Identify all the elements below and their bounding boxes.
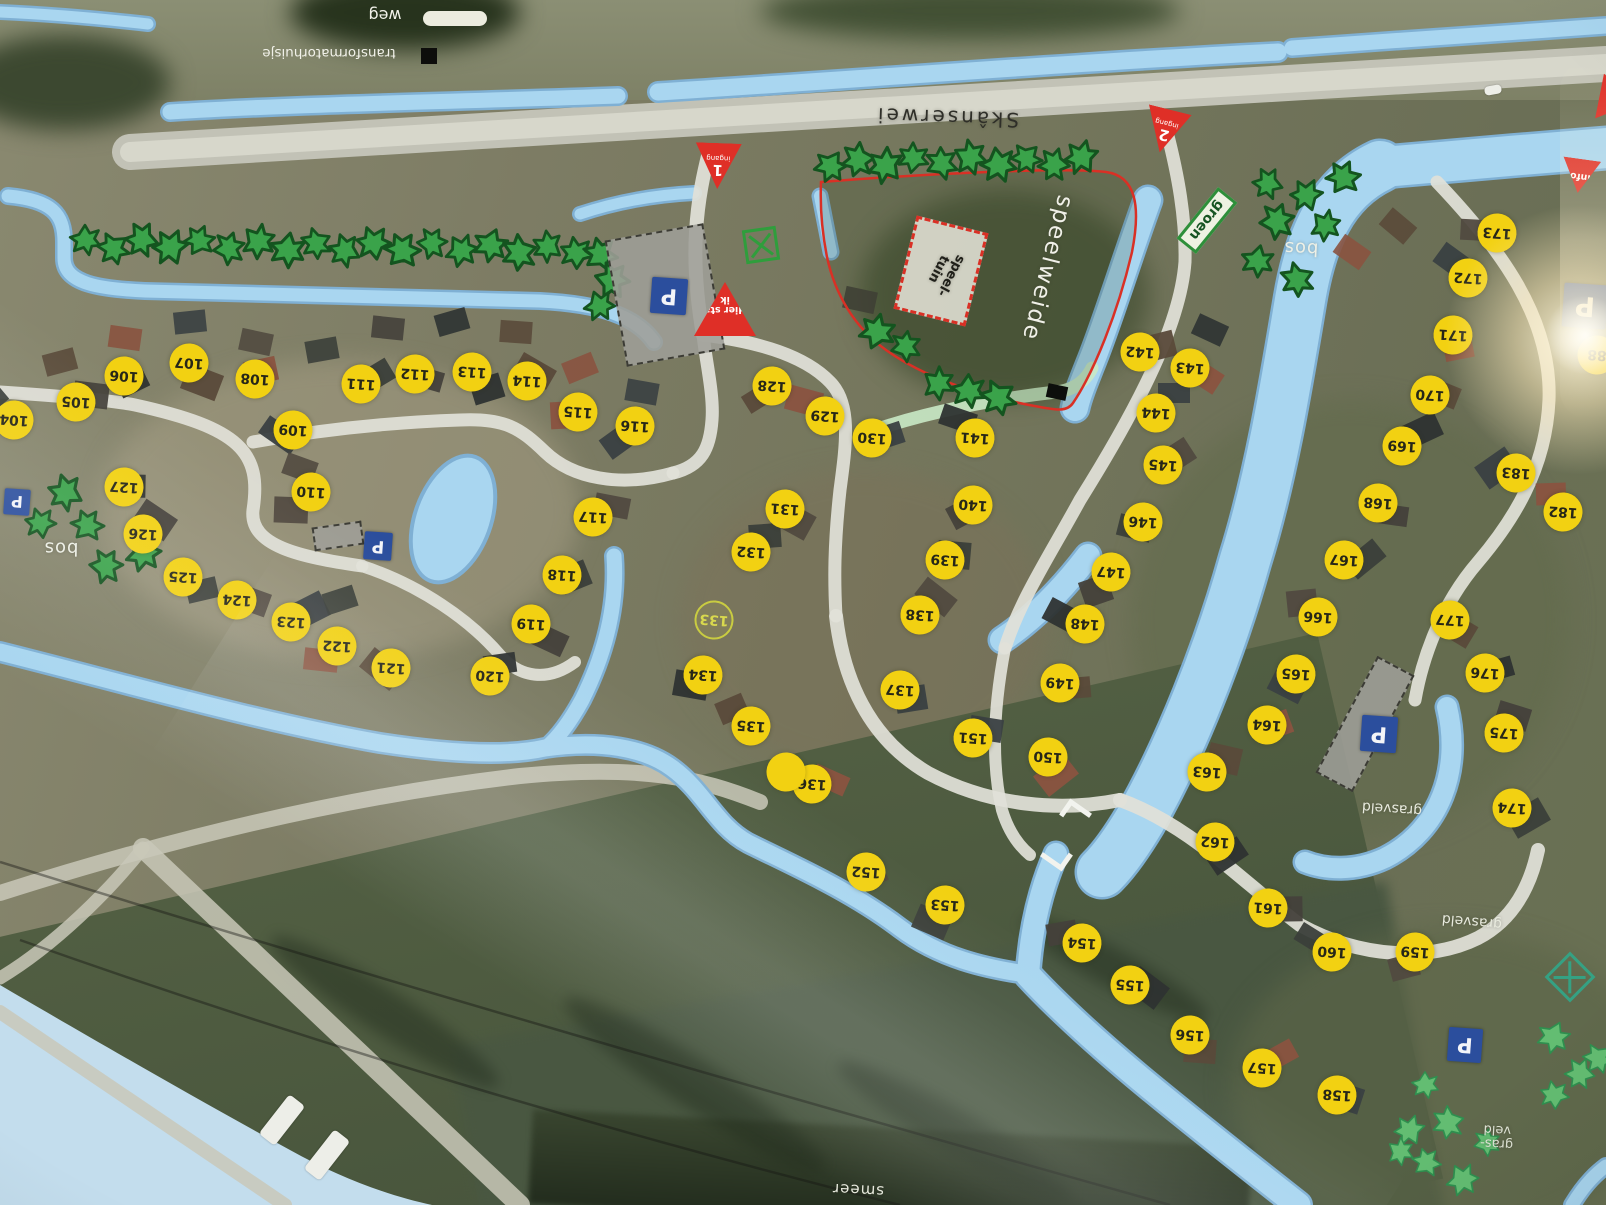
tree-icon [1407, 1143, 1447, 1183]
tree-icon [379, 227, 428, 276]
tree-icon [1412, 1072, 1438, 1098]
area-label-lake-partial: smeer [832, 1181, 885, 1200]
tree-icon [149, 225, 193, 269]
tree-icon [87, 548, 124, 585]
parking-sign: P [1447, 1027, 1483, 1063]
house-roof [173, 309, 207, 334]
tree-icon [180, 221, 221, 262]
house-roof [42, 347, 79, 377]
parking-sign: P [3, 488, 31, 516]
tree-icon [1532, 1016, 1574, 1058]
open-water [0, 985, 432, 1205]
house-roof [624, 378, 659, 405]
house-roof [321, 585, 358, 616]
tree-icon [43, 469, 90, 516]
tree-icon [1249, 164, 1286, 201]
house-roof [371, 315, 405, 340]
parking-sign: P [1562, 283, 1606, 330]
tree-icon [1441, 1159, 1484, 1202]
area-label-bos-right: bos [1283, 237, 1319, 258]
canal-outline [8, 196, 654, 342]
house-roof [499, 320, 532, 344]
house-roof [304, 336, 339, 363]
house-roof [1379, 207, 1418, 244]
tree-icon [1259, 204, 1295, 240]
park-road [995, 648, 1030, 855]
parking-sign: P [1360, 715, 1398, 753]
park-map-photo: Skânserwei weg transformatorhuisje groen… [0, 0, 1606, 1205]
area-label-bos-left: bos [43, 538, 78, 558]
house-roof [561, 352, 599, 384]
tree-icon [1429, 1103, 1467, 1141]
tree-icon [355, 224, 393, 262]
area-label-grasveld-mid: grasveld [1361, 798, 1422, 817]
tree-icon [896, 140, 931, 175]
crossing-marker [742, 226, 780, 264]
canal [1028, 975, 1298, 1205]
parking-sign: P [363, 531, 393, 561]
legend-transformator-label: transformatorhuisje [230, 45, 428, 61]
tree-icon [498, 231, 540, 273]
legend-transformator-swatch [421, 48, 437, 64]
legend-weg-label: weg [356, 6, 414, 25]
canal [580, 193, 694, 214]
legend-weg-swatch [423, 11, 487, 26]
tree-icon [1541, 1081, 1570, 1110]
canal [0, 652, 1026, 974]
tree-icon [416, 228, 449, 261]
canal [8, 196, 654, 342]
park-road [836, 616, 1120, 806]
tree-icon [1238, 242, 1275, 279]
parking-sign: P [650, 277, 688, 315]
house-roof [108, 325, 143, 351]
pond [395, 444, 512, 594]
speelweide-outline [821, 170, 1136, 409]
area-label-grasveld-bottom: gras- veld [1480, 1121, 1514, 1151]
house-roof [434, 307, 471, 337]
house-roof [238, 328, 274, 356]
house-roof [1191, 313, 1229, 346]
tree-icon [212, 232, 246, 266]
tree-icon [70, 225, 100, 255]
